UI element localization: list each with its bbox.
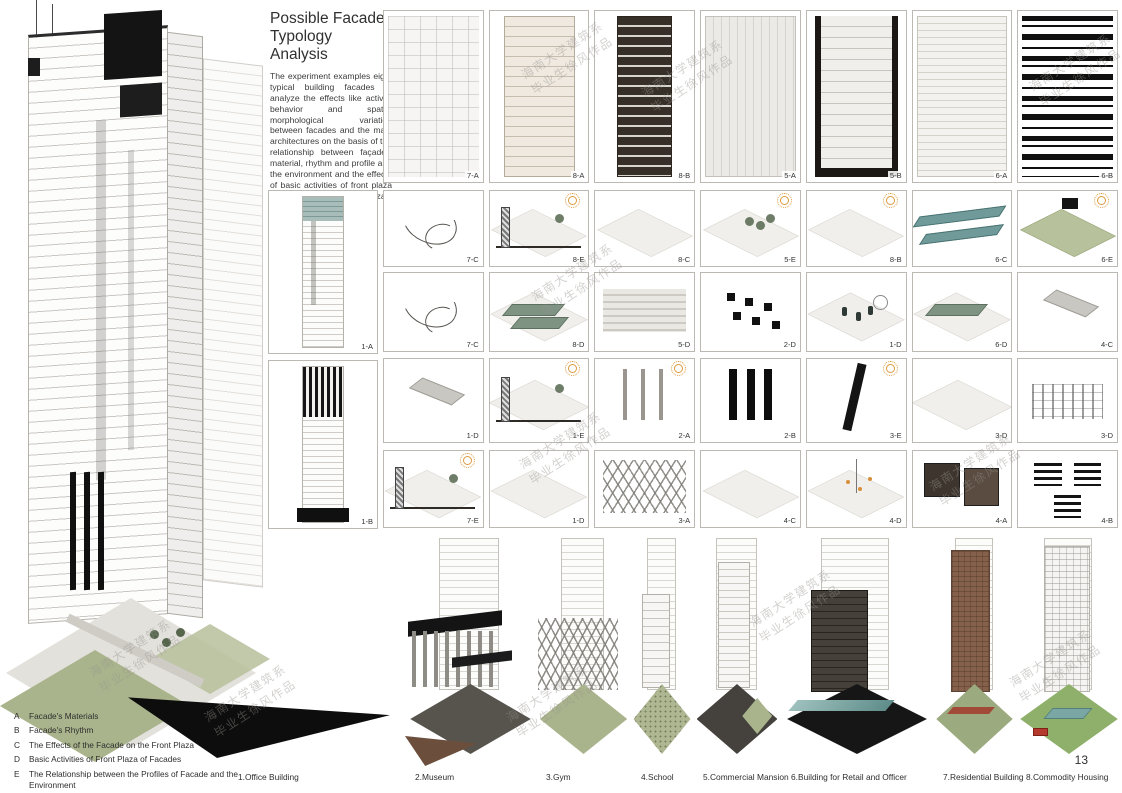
grid-cell: 7-C xyxy=(383,190,484,267)
side-elevation-column: 1-A1-B xyxy=(268,190,378,529)
pole-icon xyxy=(856,459,857,493)
cell-label: 5-D xyxy=(676,340,692,350)
sun-icon xyxy=(568,364,577,373)
circle-marker-icon xyxy=(873,295,888,310)
cell-label: 5-A xyxy=(782,171,798,181)
watermark-line: 毕业生徐风作品 xyxy=(96,630,185,697)
cell-label: 1-D xyxy=(465,431,481,441)
cell-drawing xyxy=(1018,11,1117,182)
title-block: Possible Facade Typology Analysis The ex… xyxy=(270,10,392,202)
grid-cell: 7-C xyxy=(383,272,484,352)
sun-icon xyxy=(780,196,789,205)
cell-label: 2-B xyxy=(782,431,798,441)
figure-dot xyxy=(868,477,872,481)
grid-cell: 8-B xyxy=(594,10,695,183)
facade-section-wall xyxy=(501,377,510,422)
cell-label: 1-D xyxy=(888,340,904,350)
grid-cell: 8-E xyxy=(489,190,590,267)
tower-core-slot xyxy=(98,472,104,590)
cell-label: 8-B xyxy=(888,255,904,265)
cell-label: 1-B xyxy=(359,517,375,527)
building-scene: 1.Office Building xyxy=(228,532,405,788)
plaza-lawn xyxy=(1020,684,1118,754)
plaza-path xyxy=(66,614,205,688)
column-icon xyxy=(623,369,627,420)
black-stripe-band xyxy=(303,367,342,417)
tower-elevation xyxy=(302,366,343,523)
grid-cell: 2-A xyxy=(594,358,695,443)
residential-brick-tower xyxy=(951,550,990,692)
cell-label: 8-D xyxy=(570,340,586,350)
tower-roof-block xyxy=(120,83,162,118)
context-tower xyxy=(203,58,263,587)
presentation-board: Possible Facade Typology Analysis The ex… xyxy=(0,0,1122,793)
cell-label: 5-E xyxy=(782,255,798,265)
facade-elevation-drawing xyxy=(917,16,1008,177)
water-strip xyxy=(789,700,895,711)
grey-slab xyxy=(1043,290,1100,318)
cell-label: 8-C xyxy=(676,255,692,265)
window-streak xyxy=(311,221,316,305)
grid-cell: 1-D xyxy=(383,358,484,443)
page-number: 13 xyxy=(1075,753,1088,767)
facade-elevation-drawing xyxy=(504,16,575,177)
grid-cell: 1-D xyxy=(806,272,907,352)
building-label: 4.School xyxy=(641,772,674,782)
sun-icon xyxy=(674,364,683,373)
grid-cell: 4-D xyxy=(806,450,907,528)
tree-icon xyxy=(555,214,564,223)
grid-row: 7-C8-E8-C5-E8-B6-C6-E xyxy=(383,190,1118,267)
building-scene: 8.Commodity Housing xyxy=(1016,532,1122,788)
grid-cell: 3-D xyxy=(912,358,1013,443)
building-label: 2.Museum xyxy=(415,772,454,782)
grid-cell: 3-D xyxy=(1017,358,1118,443)
facade-section-wall xyxy=(395,467,404,509)
tree-icon xyxy=(555,384,564,393)
legend-text: Facade's Materials xyxy=(29,711,249,722)
cell-label: 3-E xyxy=(888,431,904,441)
legend-key: B xyxy=(14,725,29,736)
cell-label: 6-D xyxy=(993,340,1009,350)
cell-label: 6-A xyxy=(994,171,1010,181)
cell-label: 7-A xyxy=(465,171,481,181)
cell-label: 7-C xyxy=(465,340,481,350)
building-scene: 5.Commercial Mansion xyxy=(693,532,781,788)
grid-cell: 6-A xyxy=(912,10,1013,183)
cell-label: 8-B xyxy=(676,171,692,181)
facade-elevation-drawing xyxy=(705,16,796,177)
housing-tower xyxy=(1044,546,1091,692)
cell-label: 3-D xyxy=(993,431,1009,441)
cell-drawing xyxy=(595,11,694,182)
legend-key: E xyxy=(14,769,29,791)
rhythm-bars xyxy=(1034,463,1062,486)
cell-label: 3-A xyxy=(676,516,692,526)
cell-drawing xyxy=(913,359,1012,442)
cell-label: 8-E xyxy=(571,255,587,265)
grey-slab xyxy=(408,377,465,405)
legend-text: The Effects of the Facade on the Front P… xyxy=(29,740,249,751)
building-scene: 7.Residential Building xyxy=(933,532,1016,788)
black-volume xyxy=(1062,198,1078,209)
teal-canopy-bar xyxy=(913,205,1007,227)
grid-cell: 5-A xyxy=(700,10,801,183)
plaza-diamond xyxy=(540,684,627,754)
cell-drawing xyxy=(490,359,589,442)
building-scene: 4.School xyxy=(631,532,693,788)
diagonal-profile-bar xyxy=(843,363,867,431)
grid-cell: 8-D xyxy=(489,272,590,352)
facade-elevation-drawing xyxy=(617,16,672,177)
plaza-diamond xyxy=(808,209,904,257)
grid-cell: 1-A xyxy=(268,190,378,354)
grid-row: 1-D1-E2-A2-B3-E3-D3-D xyxy=(383,358,1118,443)
sun-icon xyxy=(463,456,472,465)
cell-label: 2-D xyxy=(782,340,798,350)
grid-cell: 4-C xyxy=(700,450,801,528)
legend-text: The Relationship between the Profiles of… xyxy=(29,769,249,791)
grid-cell: 8-B xyxy=(806,190,907,267)
cell-drawing xyxy=(701,359,800,442)
cell-label: 6-E xyxy=(1099,255,1115,265)
facade-elevation-drawing xyxy=(815,16,898,177)
cell-drawing xyxy=(701,11,800,182)
plaza-diamond xyxy=(702,469,799,517)
grid-cell: 8-C xyxy=(594,190,695,267)
cell-drawing xyxy=(490,11,589,182)
rhythm-bars xyxy=(1054,495,1082,518)
legend-item: BFacade's Rhythm xyxy=(14,725,249,736)
tower-window-streak xyxy=(96,120,106,481)
tower-core-slot xyxy=(70,472,76,590)
grid-cell: 8-A xyxy=(489,10,590,183)
cell-drawing xyxy=(807,11,906,182)
retail-facade xyxy=(811,590,868,692)
grid-cell: 2-D xyxy=(700,272,801,352)
striped-floor-plan xyxy=(603,289,686,332)
legend-key: A xyxy=(14,711,29,722)
grid-cell: 1-D xyxy=(489,450,590,528)
grid-cell: 5-B xyxy=(806,10,907,183)
red-path xyxy=(947,707,994,714)
cell-label: 4-C xyxy=(1099,340,1115,350)
cell-drawing xyxy=(913,11,1012,182)
green-plaza-diamond xyxy=(1020,209,1116,257)
plaza-diamond xyxy=(491,469,588,517)
grid-cell: 5-D xyxy=(594,272,695,352)
gym-truss xyxy=(538,618,618,690)
plaza-diamond xyxy=(597,209,693,257)
antenna-line xyxy=(36,0,37,46)
grid-row: 7-C8-D5-D2-D1-D6-D4-C xyxy=(383,272,1118,352)
legend-key: D xyxy=(14,754,29,765)
page-title: Possible Facade Typology Analysis xyxy=(270,10,392,64)
cell-label: 3-D xyxy=(1099,431,1115,441)
sun-icon xyxy=(568,196,577,205)
sun-icon xyxy=(1097,196,1106,205)
tree-icon xyxy=(162,638,171,647)
grid-cell: 3-E xyxy=(806,358,907,443)
cell-drawing xyxy=(269,361,377,528)
teal-canopy-bar xyxy=(919,224,1004,245)
tree-icon xyxy=(150,630,159,639)
legend-key: C xyxy=(14,740,29,751)
grid-cell: 2-B xyxy=(700,358,801,443)
cell-label: 4-B xyxy=(1099,516,1115,526)
truss-structure xyxy=(603,460,686,513)
cell-label: 4-D xyxy=(888,516,904,526)
bottom-strip: 1.Office Building2.Museum3.Gym4.School5.… xyxy=(228,532,1122,788)
building-label: 6.Building for Retail and Officer xyxy=(791,772,907,782)
tower-body xyxy=(28,25,168,624)
bollard-icon xyxy=(842,307,847,316)
cell-drawing xyxy=(1018,359,1117,442)
tree-icon xyxy=(745,217,754,226)
plaza-diamond xyxy=(787,684,927,754)
activity-scatter xyxy=(1032,384,1103,419)
intro-paragraph: The experiment examples eight typical bu… xyxy=(270,71,392,202)
column-grid-squares xyxy=(727,293,735,301)
column-icon xyxy=(659,369,663,420)
grid-cell: 7-E xyxy=(383,450,484,528)
material-photo xyxy=(964,468,1000,506)
building-label: 7.Residential Building xyxy=(943,772,1024,782)
tower-elevation xyxy=(302,196,343,348)
cell-label: 5-B xyxy=(888,171,904,181)
plaza-diamond xyxy=(913,292,1011,341)
grid-cell: 3-A xyxy=(594,450,695,528)
cell-label: 1-A xyxy=(359,342,375,352)
material-photo xyxy=(924,463,960,497)
column-icon xyxy=(747,369,755,420)
facade-grid: 7-A8-A8-B5-A5-B6-A6-B7-C8-E8-C5-E8-B6-C6… xyxy=(383,10,1118,528)
sun-icon xyxy=(886,196,895,205)
cell-label: 4-C xyxy=(782,516,798,526)
tower-side-face xyxy=(167,32,203,618)
cell-label: 7-E xyxy=(465,516,481,526)
cell-label: 6-C xyxy=(993,255,1009,265)
cell-label: 1-D xyxy=(570,516,586,526)
cell-drawing xyxy=(384,11,483,182)
building-scene: 6.Building for Retail and Officer xyxy=(781,532,933,788)
legend-item: DBasic Activities of Front Plaza of Faca… xyxy=(14,754,249,765)
tower-roof-block xyxy=(28,58,40,76)
grid-cell: 4-B xyxy=(1017,450,1118,528)
grid-row: 7-A8-A8-B5-A5-B6-A6-B xyxy=(383,10,1118,183)
grid-cell: 6-E xyxy=(1017,190,1118,267)
cell-drawing xyxy=(807,359,906,442)
grid-cell: 1-B xyxy=(268,360,378,529)
grid-cell: 5-E xyxy=(700,190,801,267)
plaza-diamond xyxy=(633,684,690,754)
building-scene: 3.Gym xyxy=(536,532,631,788)
cell-label: 6-B xyxy=(1099,171,1115,181)
plaza-diamond xyxy=(936,684,1012,754)
school-slab xyxy=(642,594,670,688)
grid-cell: 6-D xyxy=(912,272,1013,352)
building-scene: 2.Museum xyxy=(405,532,536,788)
tower-core-slot xyxy=(84,472,90,590)
grid-cell: 4-A xyxy=(912,450,1013,528)
grid-cell: 7-A xyxy=(383,10,484,183)
cell-drawing xyxy=(384,359,483,442)
plaza-diamond xyxy=(913,380,1012,430)
legend-text: Basic Activities of Front Plaza of Facad… xyxy=(29,754,249,765)
watermark-line: 海南大学建筑系 xyxy=(86,615,175,682)
cell-label: 8-A xyxy=(571,171,587,181)
tree-icon xyxy=(449,474,458,483)
tree-icon xyxy=(176,628,185,637)
rhythm-bars xyxy=(1074,463,1102,486)
legend-text: Facade's Rhythm xyxy=(29,725,249,736)
tower-roof-block xyxy=(104,10,162,80)
building-label: 5.Commercial Mansion xyxy=(703,772,789,782)
legend-item: AFacade's Materials xyxy=(14,711,249,722)
cell-label: 4-A xyxy=(994,516,1010,526)
teal-glass-band xyxy=(303,197,342,221)
green-slab xyxy=(925,304,988,316)
legend-item: CThe Effects of the Facade on the Front … xyxy=(14,740,249,751)
mansion-tower xyxy=(718,562,750,688)
watermark: 海南大学建筑系毕业生徐风作品 xyxy=(86,615,185,697)
grid-cell: 6-C xyxy=(912,190,1013,267)
legend-item: EThe Relationship between the Profiles o… xyxy=(14,769,249,791)
cell-label: 7-C xyxy=(465,255,481,265)
building-label: 8.Commodity Housing xyxy=(1026,772,1108,782)
grid-row: 7-E1-D3-A4-C4-D4-A4-B xyxy=(383,450,1118,528)
bollard-icon xyxy=(856,312,861,321)
red-bus-icon xyxy=(1033,728,1048,736)
antenna-line xyxy=(52,4,53,38)
tree-icon xyxy=(766,214,775,223)
bollard-icon xyxy=(868,306,873,315)
cell-label: 2-A xyxy=(676,431,692,441)
facade-elevation-drawing xyxy=(388,16,479,177)
grid-cell: 6-B xyxy=(1017,10,1118,183)
column-icon xyxy=(764,369,772,420)
tower-window-streak xyxy=(128,150,134,450)
building-label: 3.Gym xyxy=(546,772,571,782)
black-base-band xyxy=(297,508,349,522)
grid-cell: 4-C xyxy=(1017,272,1118,352)
facade-section-wall xyxy=(501,207,510,248)
green-slab xyxy=(510,317,569,329)
cell-label: 1-E xyxy=(571,431,587,441)
cell-drawing xyxy=(269,191,377,353)
column-icon xyxy=(729,369,737,420)
cell-drawing xyxy=(595,359,694,442)
column-icon xyxy=(641,369,645,420)
facade-elevation-drawing xyxy=(1022,16,1113,177)
legend: AFacade's MaterialsBFacade's RhythmCThe … xyxy=(14,711,249,793)
green-slab xyxy=(502,304,565,316)
sun-icon xyxy=(886,364,895,373)
grid-cell: 1-E xyxy=(489,358,590,443)
